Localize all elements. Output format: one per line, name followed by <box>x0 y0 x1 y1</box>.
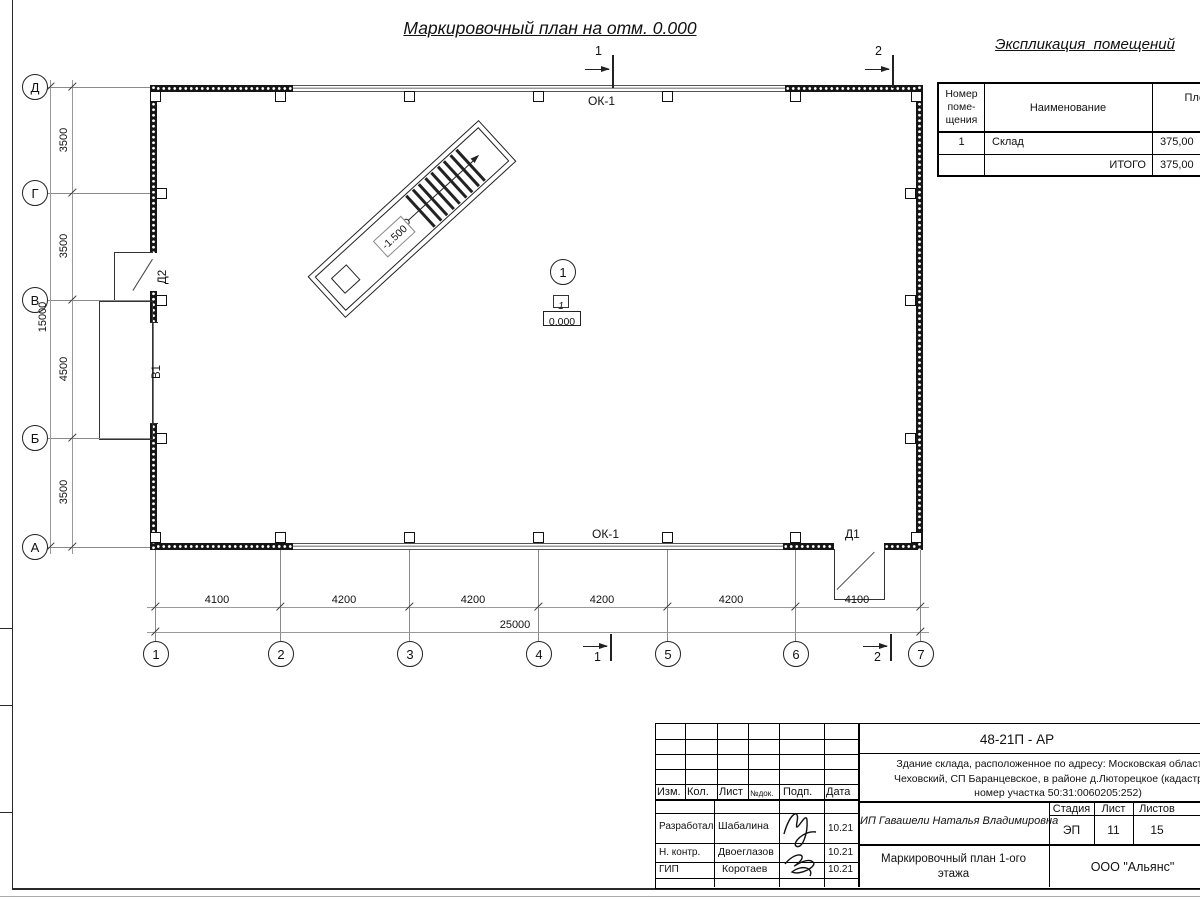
tb-hline <box>656 843 858 844</box>
column-marker <box>905 295 916 306</box>
tb-sheets-value: 15 <box>1133 823 1181 837</box>
column-marker <box>156 295 167 306</box>
axis-label: 3 <box>406 647 413 662</box>
room-elevation-box: 0.000 <box>543 311 581 326</box>
tb-sheets-header: Листов <box>1133 803 1181 815</box>
tb-role: Н. контр. <box>659 847 700 858</box>
axis-line <box>155 550 156 641</box>
axis-line <box>48 87 150 88</box>
room-elevation: 0.000 <box>549 316 575 328</box>
tb-sheet-value: 11 <box>1094 823 1133 837</box>
tb-hline <box>656 878 858 879</box>
column-marker <box>911 91 922 102</box>
axis-label: 2 <box>277 647 284 662</box>
tb-hline <box>858 844 1200 846</box>
axis-line <box>920 550 921 641</box>
axis-line <box>667 550 668 641</box>
dim-value: 4100 <box>187 594 247 606</box>
window-label-bottom: ОК-1 <box>592 527 619 541</box>
tb-hline <box>656 739 858 740</box>
tb-hline <box>656 754 858 755</box>
axis-bubble-bottom: 4 <box>526 641 552 667</box>
axis-line <box>409 550 410 641</box>
tb-date: 10.21 <box>828 823 853 834</box>
dim-value: 3500 <box>58 462 70 522</box>
drawing-sheet: { "page_title": "Маркировочный план на о… <box>0 0 1200 900</box>
dim-line-left-total <box>50 80 51 554</box>
column-marker <box>275 532 286 543</box>
column-marker <box>662 91 673 102</box>
door-d1-vestibule <box>834 549 885 600</box>
section-2-bar <box>890 634 892 661</box>
axis-line <box>48 300 150 301</box>
axis-label: 1 <box>152 647 159 662</box>
wall-top-hatch <box>785 85 923 92</box>
axis-label: 4 <box>535 647 542 662</box>
dim-value: 4100 <box>827 594 887 606</box>
tb-company: ООО "Альянс" <box>1049 860 1200 874</box>
dim-value: 4500 <box>58 339 70 399</box>
axis-bubble-bottom: 5 <box>655 641 681 667</box>
axis-bubble-left: А <box>22 534 48 560</box>
tb-stage-header: Стадия <box>1049 803 1094 815</box>
tb-vline <box>685 724 686 799</box>
frame-margin-tick <box>0 812 12 813</box>
axis-label: А <box>31 540 40 555</box>
tb-date: 10.21 <box>828 847 853 858</box>
schedule-cell-total-area: 375,00 <box>1160 159 1194 171</box>
dim-line-bottom-total <box>147 632 929 633</box>
axis-line <box>280 550 281 641</box>
header-line: Номер <box>939 88 984 101</box>
tb-hline <box>858 753 1200 754</box>
tb-vline <box>717 724 718 799</box>
tb-hline <box>656 769 858 770</box>
door-d2-label: Д2 <box>157 262 169 292</box>
axis-bubble-bottom: 7 <box>908 641 934 667</box>
tb-name: Коротаев <box>722 863 767 875</box>
axis-label: 5 <box>664 647 671 662</box>
wall-left-hatch <box>150 85 157 253</box>
section-2-arrow <box>879 643 888 649</box>
gate-b1-label: В1 <box>151 357 163 387</box>
axis-bubble-left: Б <box>22 425 48 451</box>
wall-bottom-hatch <box>150 543 293 550</box>
tb-description: Здание склада, расположенное по адресу: … <box>862 757 1200 801</box>
section-1-arrow <box>601 66 610 72</box>
tb-vline <box>748 724 749 799</box>
axis-bubble-bottom: 3 <box>397 641 423 667</box>
wall-right-hatch <box>916 85 923 550</box>
page-title: Маркировочный план на отм. 0.000 <box>370 18 730 39</box>
table-hline <box>939 131 1200 133</box>
section-2-arrow <box>881 66 890 72</box>
axis-bubble-bottom: 6 <box>783 641 809 667</box>
schedule-col-area-header: Площадь м2 <box>1152 92 1200 123</box>
section-2-label: 2 <box>875 44 882 58</box>
schedule-cell-total-label: ИТОГО <box>984 159 1146 171</box>
dim-total-value: 25000 <box>485 619 545 631</box>
tb-header-ndok: №док. <box>750 789 773 798</box>
dim-value: 4200 <box>701 594 761 606</box>
tb-client: ИП Гавашели Наталья Владимировна <box>860 815 1048 827</box>
axis-bubble-bottom: 2 <box>268 641 294 667</box>
frame-left-line <box>12 0 13 889</box>
section-1-label: 1 <box>594 650 601 664</box>
section-1-bar <box>610 634 612 661</box>
door-d1-label: Д1 <box>845 527 860 541</box>
schedule-cell-area: 375,00 <box>1160 136 1194 148</box>
column-marker <box>790 91 801 102</box>
column-marker <box>790 532 801 543</box>
tb-name: Шабалина <box>718 820 769 832</box>
dim-line-left-segments <box>72 80 73 554</box>
axis-line <box>795 550 796 641</box>
section-2-label: 2 <box>874 650 881 664</box>
dim-value: 4200 <box>314 594 374 606</box>
tb-description-line: Здание склада, расположенное по адресу: … <box>862 757 1200 772</box>
column-marker <box>275 91 286 102</box>
schedule-cell-number: 1 <box>939 136 984 148</box>
dim-value: 3500 <box>58 216 70 276</box>
tb-role: Разработал <box>659 821 713 832</box>
tb-header-list: Лист <box>719 786 743 798</box>
tb-sheet-title-line: этажа <box>858 867 1049 882</box>
schedule-title: Экспликация помещений <box>955 36 1200 53</box>
section-1-label: 1 <box>595 44 602 58</box>
column-marker <box>150 91 161 102</box>
axis-label: Б <box>31 431 40 446</box>
tb-hline <box>1049 815 1200 816</box>
wall-bottom-hatch <box>783 543 834 550</box>
tb-sheet-title-line: Маркировочный план 1-ого <box>858 852 1049 867</box>
tb-hline <box>656 813 858 814</box>
wall-top-hatch <box>150 85 293 92</box>
section-1-arrow <box>599 643 608 649</box>
header-line: поме- <box>939 101 984 114</box>
door-d2-vestibule <box>114 252 153 302</box>
axis-label: Д <box>31 80 40 95</box>
column-marker <box>156 188 167 199</box>
dim-value: 4200 <box>572 594 632 606</box>
axis-bubble-left: Г <box>22 180 48 206</box>
dim-value: 3500 <box>58 110 70 170</box>
dim-total-value: 15000 <box>37 287 49 347</box>
tb-header-kol: Кол. <box>687 786 709 798</box>
tb-hline <box>656 799 858 801</box>
column-marker <box>156 433 167 444</box>
axis-label: 6 <box>792 647 799 662</box>
stairs-ramp: -1.500 <box>308 120 517 318</box>
column-marker <box>404 532 415 543</box>
window-band-bottom <box>293 543 783 550</box>
tb-header-podp: Подп. <box>783 786 812 798</box>
schedule-col-name-header: Наименование <box>984 102 1152 114</box>
tb-header-izm: Изм. <box>657 786 681 798</box>
axis-bubble-left: Д <box>22 74 48 100</box>
tb-description-line: Чеховский, СП Баранцевское, в районе д.Л… <box>862 772 1200 787</box>
axis-label: Г <box>31 186 38 201</box>
dim-value: 4200 <box>443 594 503 606</box>
tb-hline <box>656 784 858 785</box>
tb-name: Двоеглазов <box>718 846 774 858</box>
loading-platform <box>99 301 153 440</box>
column-marker <box>911 532 922 543</box>
title-block: Изм. Кол. Лист №док. Подп. Дата Разработ… <box>655 723 1200 889</box>
column-marker <box>662 532 673 543</box>
tb-header-data: Дата <box>826 786 850 798</box>
frame-margin-tick <box>0 705 12 706</box>
room-marker-circle: 1 <box>550 259 576 285</box>
room-number-box: 1 <box>553 295 569 308</box>
column-marker <box>905 433 916 444</box>
axis-label: 7 <box>917 647 924 662</box>
frame-margin-tick <box>0 628 12 629</box>
tb-description-line: номер участка 50:31:0060205:252) <box>862 786 1200 801</box>
axis-bubble-bottom: 1 <box>143 641 169 667</box>
schedule-col-number-header: Номер поме- щения <box>939 88 984 127</box>
axis-line <box>48 547 150 548</box>
sheet-edge-line <box>0 896 1200 897</box>
section-1-bar <box>612 55 614 88</box>
column-marker <box>905 188 916 199</box>
header-line: м2 <box>1152 108 1200 123</box>
signature-scribbles <box>780 806 824 884</box>
axis-line <box>48 193 150 194</box>
header-line: Площадь <box>1152 92 1200 104</box>
axis-line <box>48 438 150 439</box>
column-marker <box>533 91 544 102</box>
header-line: щения <box>939 114 984 127</box>
section-2-bar <box>892 55 894 88</box>
table-hline <box>939 154 1200 155</box>
tb-doc-number: 48-21П - АР <box>858 732 1176 747</box>
column-marker <box>533 532 544 543</box>
column-marker <box>404 91 415 102</box>
window-label-top: ОК-1 <box>588 94 615 108</box>
room-schedule-table: Номер поме- щения Наименование Площадь м… <box>937 82 1200 177</box>
tb-role: ГИП <box>659 864 679 875</box>
tb-sheet-header: Лист <box>1094 803 1133 815</box>
tb-date: 10.21 <box>828 864 853 875</box>
tb-sheet-title: Маркировочный план 1-ого этажа <box>858 852 1049 882</box>
tb-stage-value: ЭП <box>1049 823 1094 837</box>
schedule-cell-name: Склад <box>992 136 1024 148</box>
column-marker <box>150 532 161 543</box>
room-marker-number: 1 <box>559 265 566 280</box>
